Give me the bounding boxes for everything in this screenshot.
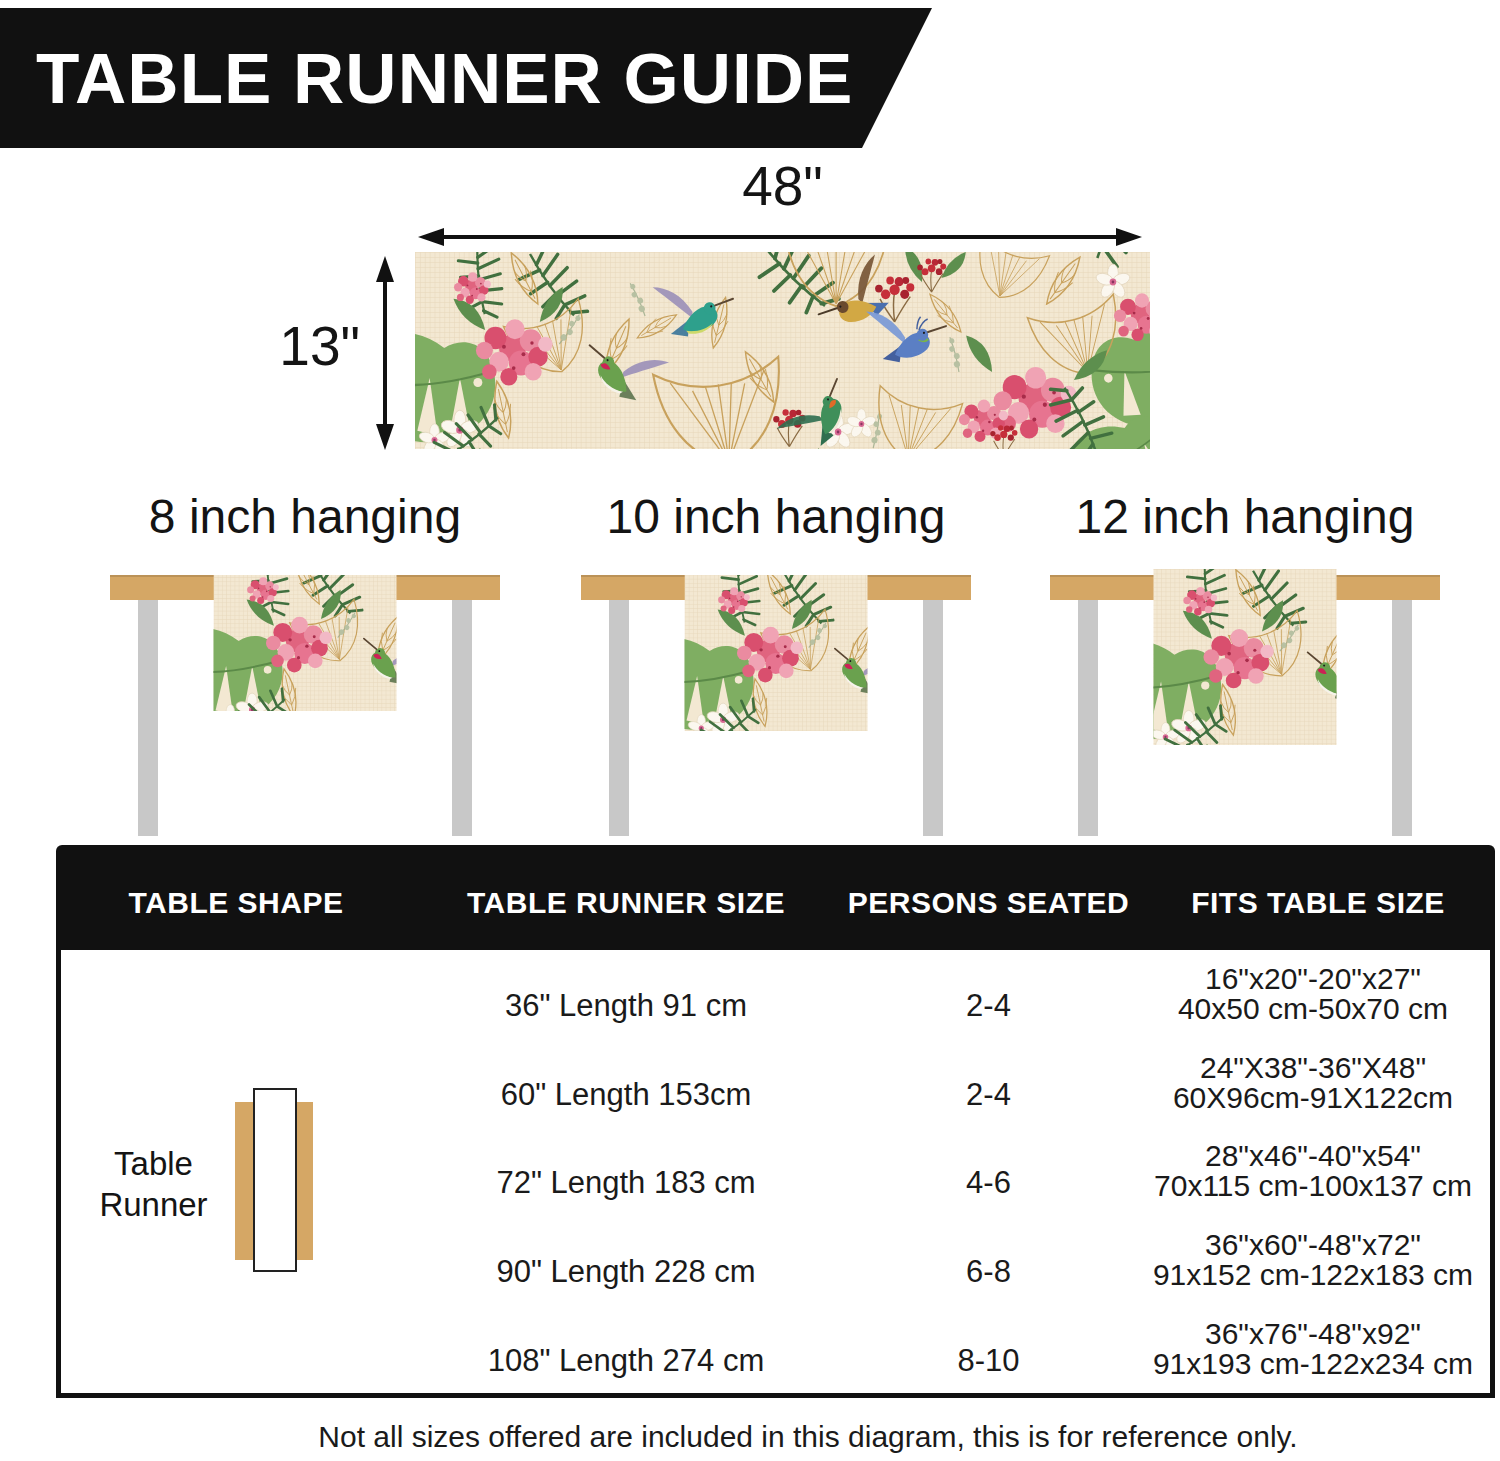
hanging-option-8in: 8 inch hanging <box>85 488 525 840</box>
table-runner-image <box>415 252 1150 449</box>
size-table-header: TABLE SHAPE TABLE RUNNER SIZE PERSONS SE… <box>56 845 1495 950</box>
fits-line1: 24"X38"-36"X48" <box>1141 1053 1485 1083</box>
table-shape-label-line2: Runner <box>81 1184 226 1225</box>
table-leg-right <box>1392 600 1412 836</box>
width-arrow-icon <box>418 225 1142 249</box>
persons-seated-cell: 2-4 <box>836 1077 1141 1113</box>
table-shape-label: Table Runner <box>81 1143 226 1225</box>
fits-table-size-cell: 28"x46"-40"x54" 70x115 cm-100x137 cm <box>1141 1141 1485 1201</box>
column-header-fits-table-size: FITS TABLE SIZE <box>1141 886 1495 920</box>
fits-line2: 40x50 cm-50x70 cm <box>1141 994 1485 1024</box>
table-leg-right <box>923 600 943 836</box>
persons-seated-cell: 4-6 <box>836 1165 1141 1201</box>
column-header-runner-size: TABLE RUNNER SIZE <box>416 886 836 920</box>
height-dimension-label: 13" <box>250 314 360 378</box>
hanging-runner-image <box>214 575 397 711</box>
table-illustration <box>1025 548 1465 840</box>
runner-size-cell: 108" Length 274 cm <box>416 1343 836 1379</box>
runner-size-cell: 36" Length 91 cm <box>416 988 836 1024</box>
fits-table-size-cell: 36"x76"-48"x92" 91x193 cm-122x234 cm <box>1141 1319 1485 1379</box>
persons-seated-cell: 8-10 <box>836 1343 1141 1379</box>
table-leg-right <box>452 600 472 836</box>
width-dimension-label: 48" <box>415 154 1150 218</box>
table-leg-left <box>138 600 158 836</box>
column-header-persons-seated: PERSONS SEATED <box>836 886 1141 920</box>
fits-line1: 28"x46"-40"x54" <box>1141 1141 1485 1171</box>
table-shape-figure: Table Runner <box>61 950 416 1388</box>
title-banner: TABLE RUNNER GUIDE <box>0 8 940 148</box>
persons-seated-cell: 6-8 <box>836 1254 1141 1290</box>
hanging-option-12in: 12 inch hanging <box>1025 488 1465 840</box>
page-title: TABLE RUNNER GUIDE <box>0 8 940 149</box>
hanging-option-10in: 10 inch hanging <box>556 488 996 840</box>
hanging-option-label: 8 inch hanging <box>85 488 525 548</box>
hanging-option-label: 10 inch hanging <box>556 488 996 548</box>
hanging-runner-image <box>685 575 868 731</box>
table-illustration <box>85 548 525 840</box>
table-illustration <box>556 548 996 840</box>
fits-table-size-cell: 24"X38"-36"X48" 60X96cm-91X122cm <box>1141 1053 1485 1113</box>
fits-line2: 70x115 cm-100x137 cm <box>1141 1171 1485 1201</box>
fits-line1: 16"x20"-20"x27" <box>1141 964 1485 994</box>
fits-table-size-cell: 36"x60"-48"x72" 91x152 cm-122x183 cm <box>1141 1230 1485 1290</box>
size-table-body: Table Runner 36" Length 91 cm 2-4 16"x20… <box>56 950 1495 1398</box>
runner-size-cell: 60" Length 153cm <box>416 1077 836 1113</box>
size-table: TABLE SHAPE TABLE RUNNER SIZE PERSONS SE… <box>56 845 1495 1398</box>
persons-seated-cell: 2-4 <box>836 988 1141 1024</box>
fits-line2: 91x193 cm-122x234 cm <box>1141 1349 1485 1379</box>
table-leg-left <box>609 600 629 836</box>
fits-line2: 60X96cm-91X122cm <box>1141 1083 1485 1113</box>
fits-line1: 36"x60"-48"x72" <box>1141 1230 1485 1260</box>
runner-top-view <box>253 1088 297 1272</box>
table-shape-label-line1: Table <box>81 1143 226 1184</box>
footer-note: Not all sizes offered are included in th… <box>0 1420 1500 1454</box>
runner-size-cell: 72" Length 183 cm <box>416 1165 836 1201</box>
fits-table-size-cell: 16"x20"-20"x27" 40x50 cm-50x70 cm <box>1141 964 1485 1024</box>
fits-line1: 36"x76"-48"x92" <box>1141 1319 1485 1349</box>
height-arrow-icon <box>373 256 397 450</box>
hanging-option-label: 12 inch hanging <box>1025 488 1465 548</box>
runner-size-cell: 90" Length 228 cm <box>416 1254 836 1290</box>
table-leg-left <box>1078 600 1098 836</box>
table-runner-guide-infographic: TABLE RUNNER GUIDE 48" 13" 8 inch hangin… <box>0 0 1500 1461</box>
fits-line2: 91x152 cm-122x183 cm <box>1141 1260 1485 1290</box>
hanging-runner-image <box>1154 569 1337 745</box>
column-header-table-shape: TABLE SHAPE <box>56 886 416 920</box>
